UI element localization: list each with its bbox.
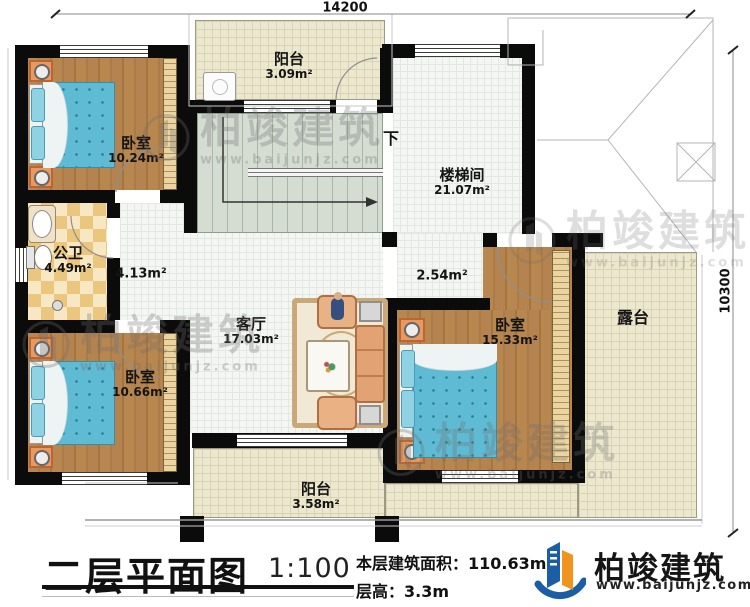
lamp-icon [34, 341, 50, 357]
floor-area-text: 本层建筑面积：110.63m² [356, 550, 553, 574]
person-figure [331, 298, 344, 320]
lamp-icon [34, 450, 50, 466]
balcony-bottom-strip [385, 483, 578, 518]
label-balcony-bottom: 阳台 3.58m² [292, 481, 339, 511]
balcony-pillar [180, 516, 204, 542]
roof-outline [508, 18, 715, 252]
floor-plan: 14200 10300 阳台 3.09m² 卧室 10.24m² 公卫 4.49… [0, 0, 750, 607]
sliding-door-living [237, 434, 347, 447]
armchair [317, 396, 357, 430]
nightstand [29, 337, 53, 359]
nightstand [399, 318, 425, 342]
nightstand [29, 446, 53, 468]
dimension-right: 10300 [719, 268, 734, 313]
window-bedroom-bl [62, 472, 147, 485]
coffee-table [306, 340, 350, 392]
label-hallway-area: 4.13m² [115, 268, 166, 283]
sofa [355, 325, 385, 403]
nightstand [29, 166, 53, 188]
stair-handrail [248, 168, 383, 177]
side-table [359, 405, 381, 425]
lamp-icon [34, 64, 50, 80]
stairwell-floor [393, 57, 522, 234]
terrace-floor [578, 252, 697, 518]
page-title: 二层平面图 [44, 546, 249, 602]
label-bedroom-tl: 卧室 10.24m² [108, 135, 164, 165]
floor-height-text: 层高：3.3m [356, 578, 449, 602]
drain-icon [52, 300, 63, 311]
window-bedroom-r [442, 470, 518, 483]
closet-bedroom-tl [163, 58, 177, 190]
title-underline [42, 585, 354, 589]
drawing-scale: 1:100 [268, 553, 351, 584]
label-stairwell: 楼梯间 21.07m² [434, 167, 490, 197]
hall-small-floor [397, 233, 483, 298]
label-hall-small-area: 2.54m² [416, 270, 467, 285]
label-bedroom-bl: 卧室 10.66m² [112, 369, 168, 399]
dimension-top: 14200 [322, 1, 367, 16]
lamp-icon [404, 322, 420, 338]
person-figure [334, 292, 342, 300]
washing-machine-icon [203, 72, 236, 101]
window-bedroom-tl [60, 45, 148, 58]
skylight-icon [677, 143, 715, 181]
side-table [359, 301, 382, 322]
sink-icon [28, 205, 56, 243]
nightstand [29, 60, 53, 82]
title-underline-thin [42, 596, 354, 597]
balcony-pillar [375, 516, 399, 542]
label-living: 客厅 17.03m² [223, 316, 279, 346]
window-balcony-top [244, 100, 330, 113]
label-bedroom-r: 卧室 15.33m² [482, 317, 538, 347]
lamp-icon [34, 170, 50, 186]
brand-website: www.baijunjz.com [596, 578, 750, 593]
closet-bedroom-r [552, 250, 570, 463]
brand-logo-icon [534, 538, 586, 602]
balcony-bottom-floor [193, 448, 385, 518]
label-terrace: 露台 [617, 309, 649, 327]
label-bathroom: 公卫 4.49m² [44, 245, 91, 275]
label-balcony-top: 阳台 3.09m² [265, 51, 312, 81]
hallway-floor [120, 203, 190, 320]
closet-bedroom-bl [163, 333, 177, 472]
label-stairs-down: 下 [383, 130, 399, 148]
window-stairwell [415, 44, 500, 57]
